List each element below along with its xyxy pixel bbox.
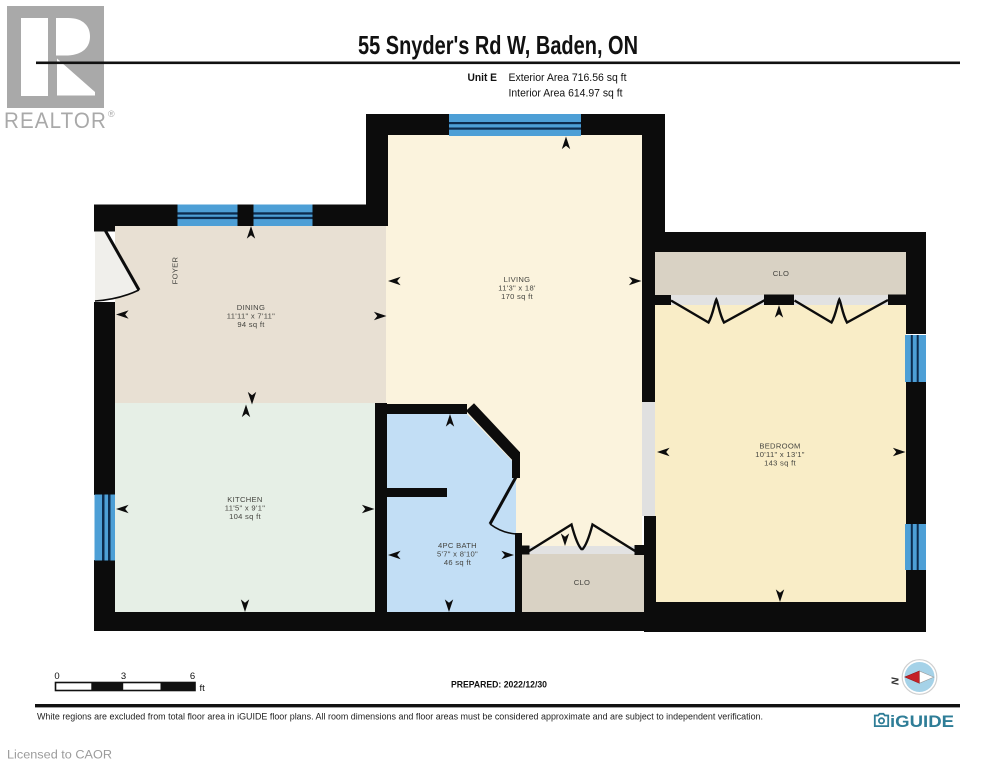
- svg-text:FOYER: FOYER: [171, 256, 180, 284]
- svg-text:104 sq ft: 104 sq ft: [229, 512, 261, 521]
- svg-text:170 sq ft: 170 sq ft: [501, 292, 533, 301]
- svg-text:PREPARED: 2022/12/30: PREPARED: 2022/12/30: [451, 679, 547, 690]
- svg-text:Unit E: Unit E: [468, 72, 498, 84]
- svg-text:ft: ft: [200, 683, 206, 694]
- svg-text:®: ®: [108, 109, 115, 119]
- svg-text:REALTOR: REALTOR: [4, 108, 107, 133]
- svg-text:N: N: [890, 677, 902, 685]
- svg-text:Interior Area 614.97 sq ft: Interior Area 614.97 sq ft: [509, 88, 624, 100]
- svg-text:0: 0: [54, 671, 59, 682]
- svg-text:6: 6: [190, 671, 195, 682]
- svg-text:CLO: CLO: [574, 578, 591, 587]
- svg-text:Exterior Area 716.56 sq ft: Exterior Area 716.56 sq ft: [509, 72, 628, 84]
- svg-text:White regions are excluded fro: White regions are excluded from total fl…: [37, 712, 763, 722]
- svg-text:46 sq ft: 46 sq ft: [444, 558, 472, 567]
- svg-text:55 Snyder's Rd W, Baden, ON: 55 Snyder's Rd W, Baden, ON: [358, 30, 638, 60]
- svg-text:Licensed to CAOR: Licensed to CAOR: [7, 750, 112, 762]
- svg-text:94 sq ft: 94 sq ft: [237, 320, 265, 329]
- svg-text:3: 3: [121, 671, 126, 682]
- svg-text:iGUIDE: iGUIDE: [890, 713, 954, 731]
- svg-text:CLO: CLO: [773, 269, 790, 278]
- svg-text:143 sq ft: 143 sq ft: [764, 458, 796, 467]
